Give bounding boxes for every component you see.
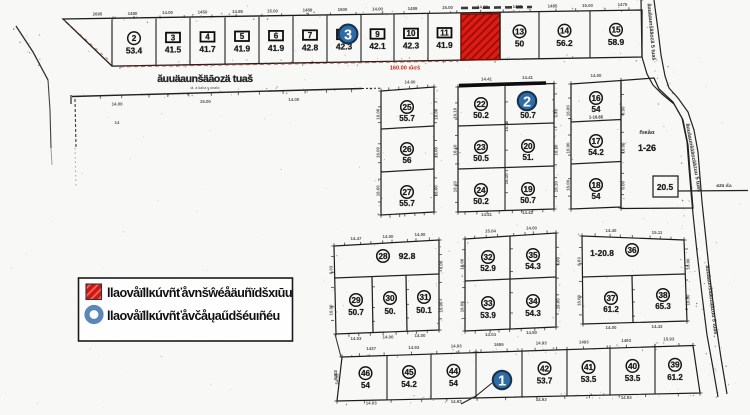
svg-text:18: 18 bbox=[591, 181, 601, 190]
svg-text:41.9: 41.9 bbox=[234, 44, 251, 54]
svg-text:13: 13 bbox=[515, 27, 525, 36]
svg-text:1-26: 1-26 bbox=[638, 143, 656, 153]
svg-text:16.10: 16.10 bbox=[504, 120, 509, 132]
svg-text:1500: 1500 bbox=[338, 7, 348, 12]
svg-text:15.04: 15.04 bbox=[485, 228, 497, 233]
svg-text:42.8: 42.8 bbox=[302, 42, 319, 52]
svg-text:55.7: 55.7 bbox=[399, 199, 415, 208]
svg-text:14: 14 bbox=[115, 120, 120, 125]
svg-text:14.85: 14.85 bbox=[232, 9, 244, 14]
svg-text:31: 31 bbox=[419, 293, 429, 302]
svg-text:1655: 1655 bbox=[494, 342, 504, 347]
svg-text:39: 39 bbox=[670, 361, 680, 370]
svg-text:14.93: 14.93 bbox=[451, 343, 463, 348]
svg-text:16.00: 16.00 bbox=[460, 258, 465, 270]
svg-text:16.10: 16.10 bbox=[453, 107, 458, 119]
svg-text:16.00: 16.00 bbox=[686, 258, 691, 270]
svg-text:7: 7 bbox=[308, 31, 313, 40]
svg-text:52.9: 52.9 bbox=[480, 264, 496, 273]
svg-text:56: 56 bbox=[403, 156, 412, 165]
svg-text:41.9: 41.9 bbox=[268, 43, 285, 53]
svg-text:14.00: 14.00 bbox=[112, 101, 124, 106]
svg-text:1-20.8: 1-20.8 bbox=[590, 248, 614, 258]
svg-text:16.10: 16.10 bbox=[453, 181, 458, 193]
svg-text:50.5: 50.5 bbox=[473, 154, 489, 163]
svg-text:15.11: 15.11 bbox=[652, 230, 663, 235]
svg-text:16.00: 16.00 bbox=[566, 179, 571, 191]
svg-text:14.00: 14.00 bbox=[288, 97, 300, 102]
svg-text:6.03: 6.03 bbox=[329, 265, 334, 274]
svg-text:1480: 1480 bbox=[128, 11, 138, 16]
svg-text:160.00 ιΰσš: 160.00 ιΰσš bbox=[390, 66, 420, 72]
svg-text:14.93: 14.93 bbox=[451, 399, 463, 404]
svg-text:14.00: 14.00 bbox=[372, 7, 384, 12]
svg-text:15.00: 15.00 bbox=[582, 3, 594, 8]
svg-text:42.3: 42.3 bbox=[403, 41, 420, 51]
svg-text:14.00: 14.00 bbox=[383, 335, 395, 340]
svg-text:14.43: 14.43 bbox=[652, 324, 664, 329]
svg-text:50.7: 50.7 bbox=[520, 111, 536, 120]
svg-text:14.41: 14.41 bbox=[522, 210, 534, 215]
svg-text:38: 38 bbox=[658, 291, 668, 300]
svg-text:30: 30 bbox=[385, 294, 395, 303]
svg-text:ñιĸåα: ñιĸåα bbox=[639, 129, 655, 136]
svg-text:65.3: 65.3 bbox=[655, 302, 671, 311]
svg-text:5: 5 bbox=[240, 32, 245, 41]
svg-text:20.5: 20.5 bbox=[657, 182, 674, 192]
svg-text:54: 54 bbox=[361, 381, 370, 390]
svg-text:14.41: 14.41 bbox=[481, 76, 493, 81]
svg-text:16.00: 16.00 bbox=[439, 301, 444, 313]
svg-text:14.03: 14.03 bbox=[351, 336, 363, 341]
svg-text:14.50: 14.50 bbox=[526, 330, 538, 335]
svg-text:14.00: 14.00 bbox=[606, 325, 618, 330]
svg-text:42: 42 bbox=[540, 364, 550, 373]
svg-text:41.9: 41.9 bbox=[436, 40, 453, 50]
svg-text:26: 26 bbox=[402, 145, 412, 154]
svg-text:53.5: 53.5 bbox=[581, 375, 597, 384]
svg-text:61.2: 61.2 bbox=[667, 373, 683, 382]
svg-text:16.00: 16.00 bbox=[566, 105, 571, 117]
svg-text:61.2: 61.2 bbox=[603, 305, 619, 314]
svg-text:37: 37 bbox=[606, 294, 616, 303]
svg-text:3: 3 bbox=[344, 27, 352, 43]
svg-text:ăuuäaunšäāozä tuaš: ăuuäaunšäāozä tuaš bbox=[157, 73, 253, 85]
svg-text:54.3: 54.3 bbox=[525, 262, 541, 271]
svg-text:16.10: 16.10 bbox=[504, 173, 509, 185]
svg-text:35: 35 bbox=[528, 251, 538, 260]
svg-text:1493: 1493 bbox=[621, 338, 631, 343]
svg-text:54.2: 54.2 bbox=[588, 148, 604, 157]
svg-text:14.00: 14.00 bbox=[415, 333, 427, 338]
svg-text:54: 54 bbox=[449, 379, 458, 388]
svg-text:40: 40 bbox=[628, 362, 638, 371]
svg-text:16.00: 16.00 bbox=[376, 185, 381, 197]
svg-text:54: 54 bbox=[592, 192, 601, 201]
svg-text:16: 16 bbox=[591, 94, 601, 103]
svg-text:14.93: 14.93 bbox=[536, 397, 548, 402]
svg-text:14.00: 14.00 bbox=[162, 10, 174, 15]
svg-text:50.1: 50.1 bbox=[416, 306, 432, 315]
svg-text:14.47: 14.47 bbox=[351, 236, 363, 241]
svg-text:6: 6 bbox=[274, 32, 279, 41]
svg-text:54.3: 54.3 bbox=[525, 309, 541, 318]
svg-text:6.00: 6.00 bbox=[556, 256, 561, 265]
svg-text:14.41: 14.41 bbox=[522, 75, 534, 80]
svg-text:16.00: 16.00 bbox=[556, 298, 561, 310]
svg-text:16.00: 16.00 bbox=[376, 146, 381, 158]
svg-text:14.04: 14.04 bbox=[485, 332, 497, 337]
svg-text:15.00: 15.00 bbox=[200, 99, 212, 104]
svg-text:1489: 1489 bbox=[408, 6, 418, 11]
svg-text:14.40: 14.40 bbox=[606, 228, 618, 233]
svg-text:9: 9 bbox=[375, 30, 380, 39]
svg-text:29: 29 bbox=[351, 296, 361, 305]
svg-text:50.7: 50.7 bbox=[348, 308, 364, 317]
svg-text:14.41: 14.41 bbox=[481, 212, 493, 217]
svg-text:16.10: 16.10 bbox=[554, 144, 559, 156]
svg-text:17: 17 bbox=[591, 137, 601, 146]
svg-text:23: 23 bbox=[476, 143, 486, 152]
svg-text:36: 36 bbox=[627, 246, 637, 255]
svg-text:44: 44 bbox=[449, 367, 459, 376]
svg-text:92.8: 92.8 bbox=[399, 251, 416, 261]
svg-text:2: 2 bbox=[132, 34, 137, 43]
svg-text:22: 22 bbox=[476, 100, 486, 109]
svg-text:53.4: 53.4 bbox=[126, 45, 143, 55]
svg-text:50.2: 50.2 bbox=[473, 111, 489, 120]
svg-text:4: 4 bbox=[205, 33, 210, 42]
svg-text:51.: 51. bbox=[522, 153, 533, 162]
svg-text:1475: 1475 bbox=[618, 2, 628, 7]
svg-text:14.93: 14.93 bbox=[621, 395, 633, 400]
svg-text:10: 10 bbox=[407, 29, 416, 38]
svg-text:6.03: 6.03 bbox=[577, 257, 582, 266]
svg-text:14.00: 14.00 bbox=[415, 232, 427, 237]
svg-text:41.5: 41.5 bbox=[165, 45, 182, 55]
svg-text:15.00: 15.00 bbox=[267, 8, 279, 13]
svg-text:53.7: 53.7 bbox=[537, 376, 553, 385]
svg-text:15.00: 15.00 bbox=[442, 5, 454, 10]
svg-text:5403: 5403 bbox=[333, 370, 338, 380]
svg-text:16.00: 16.00 bbox=[329, 304, 334, 316]
svg-text:55.7: 55.7 bbox=[399, 114, 415, 123]
svg-text:50.: 50. bbox=[384, 307, 395, 316]
svg-text:16.00: 16.00 bbox=[376, 108, 381, 120]
svg-text:14.03: 14.03 bbox=[366, 401, 378, 406]
svg-text:1450: 1450 bbox=[198, 10, 208, 15]
svg-text:16.00: 16.00 bbox=[434, 185, 439, 197]
svg-text:58.9: 58.9 bbox=[608, 37, 625, 47]
svg-text:20: 20 bbox=[523, 142, 533, 151]
svg-text:14.00: 14.00 bbox=[383, 234, 395, 239]
svg-text:3: 3 bbox=[171, 33, 176, 42]
svg-text:14.00: 14.00 bbox=[591, 73, 603, 78]
svg-text:2: 2 bbox=[523, 94, 531, 110]
svg-text:32: 32 bbox=[483, 253, 493, 262]
svg-text:llaovåïllĸúvñťåvnšŵéåäuñïdšxıū: llaovåïllĸúvñťåvnšŵéåäuñïdšxıūu bbox=[107, 286, 292, 300]
svg-text:25: 25 bbox=[402, 103, 412, 112]
svg-text:45: 45 bbox=[404, 368, 414, 377]
svg-text:19: 19 bbox=[523, 185, 533, 194]
svg-text:1485: 1485 bbox=[548, 3, 558, 8]
svg-text:46: 46 bbox=[361, 369, 371, 378]
svg-text:42.1: 42.1 bbox=[369, 41, 386, 51]
svg-text:16.00: 16.00 bbox=[577, 294, 582, 306]
svg-text:1: 1 bbox=[498, 373, 506, 389]
svg-text:34: 34 bbox=[528, 297, 538, 306]
svg-text:16.10: 16.10 bbox=[453, 144, 458, 156]
svg-text:14.00: 14.00 bbox=[526, 225, 538, 230]
svg-text:llaovåïllĸúvñťåvčåųaűdšéuıñéu: llaovåïllĸúvñťåvčåųaűdšéuıñéu bbox=[107, 309, 280, 323]
svg-text:56.2: 56.2 bbox=[556, 38, 573, 48]
svg-text:54: 54 bbox=[592, 105, 601, 114]
svg-text:14.00: 14.00 bbox=[405, 80, 417, 85]
svg-text:14: 14 bbox=[560, 27, 570, 36]
svg-text:1493: 1493 bbox=[579, 339, 589, 344]
svg-text:1-16.85: 1-16.85 bbox=[589, 115, 604, 120]
svg-text:14.93: 14.93 bbox=[536, 341, 548, 346]
svg-text:15: 15 bbox=[611, 26, 621, 35]
svg-text:54.2: 54.2 bbox=[401, 380, 417, 389]
svg-text:ıā. a ūaīıa s unaīıε: ıā. a ūaīıa s unaīıε bbox=[190, 86, 220, 90]
svg-text:16.00: 16.00 bbox=[434, 108, 439, 120]
svg-text:50.7: 50.7 bbox=[520, 196, 536, 205]
svg-text:1489: 1489 bbox=[303, 8, 313, 13]
svg-text:11: 11 bbox=[440, 29, 449, 38]
svg-text:1437: 1437 bbox=[366, 346, 376, 351]
svg-text:15.93: 15.93 bbox=[663, 337, 675, 342]
svg-text:41.7: 41.7 bbox=[199, 44, 216, 54]
svg-text:ø2ū ıča: ø2ū ıča bbox=[716, 183, 732, 188]
svg-text:16.00: 16.00 bbox=[566, 142, 571, 154]
svg-text:14.93: 14.93 bbox=[408, 345, 420, 350]
svg-text:27: 27 bbox=[402, 188, 412, 197]
svg-text:16.00: 16.00 bbox=[686, 294, 691, 306]
svg-text:53.5: 53.5 bbox=[625, 374, 641, 383]
svg-text:24: 24 bbox=[476, 186, 486, 195]
svg-text:33: 33 bbox=[483, 299, 493, 308]
svg-text:50.2: 50.2 bbox=[473, 197, 489, 206]
svg-text:53.9: 53.9 bbox=[480, 311, 496, 320]
svg-text:41: 41 bbox=[584, 363, 594, 372]
svg-text:2695: 2695 bbox=[93, 11, 103, 16]
svg-text:6.00: 6.00 bbox=[439, 260, 444, 269]
svg-text:50: 50 bbox=[515, 39, 525, 49]
